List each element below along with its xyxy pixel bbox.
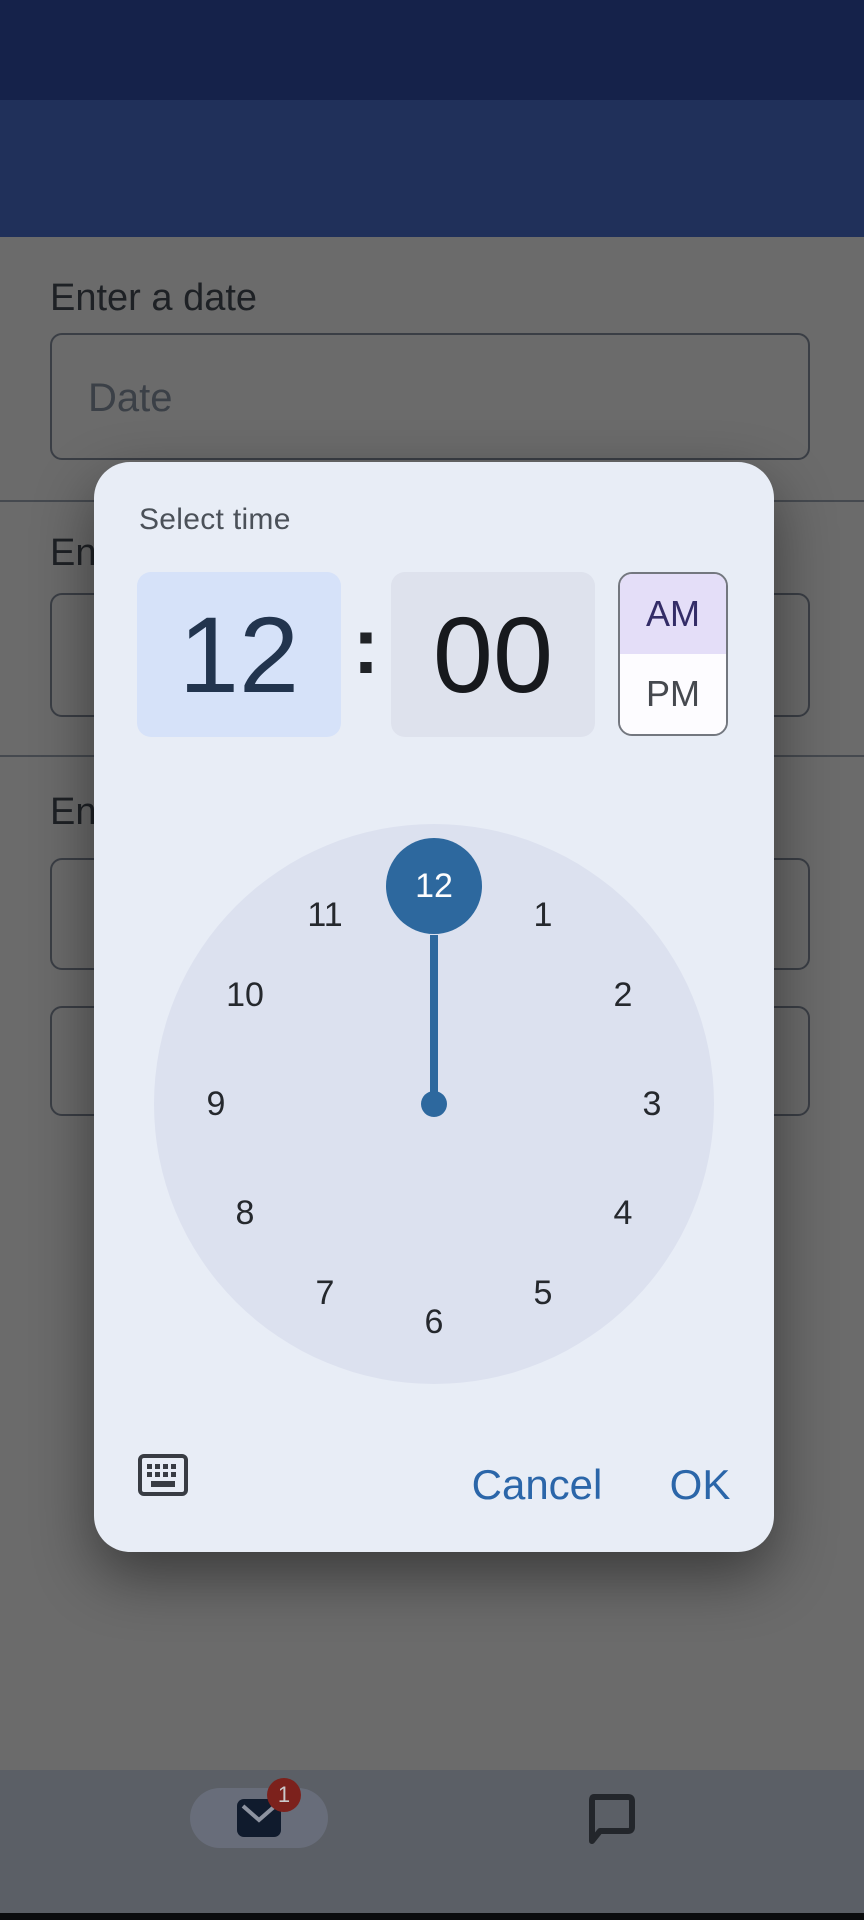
clock-dial[interactable]: 12 1 2 3 4 5 6 7 8 9 10 11 12 bbox=[154, 824, 714, 1384]
clock-number[interactable]: 2 bbox=[593, 965, 653, 1025]
gesture-bar bbox=[0, 1913, 864, 1920]
clock-hand bbox=[430, 935, 438, 1104]
ok-button[interactable]: OK bbox=[654, 1460, 746, 1510]
time-separator: : bbox=[341, 567, 391, 732]
section-label-partial: En bbox=[50, 791, 96, 834]
mail-badge: 1 bbox=[267, 1778, 301, 1812]
app-bar: Contacts bbox=[0, 100, 864, 237]
am-option[interactable]: AM bbox=[620, 574, 726, 656]
clock-number[interactable]: 8 bbox=[215, 1183, 275, 1243]
clock-number[interactable]: 1 bbox=[513, 885, 573, 945]
bottom-nav: 1 bbox=[0, 1770, 864, 1920]
date-input: Date bbox=[50, 333, 810, 460]
clock-number[interactable]: 7 bbox=[295, 1263, 355, 1323]
keyboard-icon bbox=[138, 1454, 188, 1498]
date-placeholder: Date bbox=[88, 376, 173, 421]
keyboard-input-toggle[interactable] bbox=[138, 1454, 192, 1504]
dialog-title: Select time bbox=[139, 503, 291, 537]
clock-number[interactable]: 11 bbox=[295, 885, 355, 945]
clock-number[interactable]: 5 bbox=[513, 1263, 573, 1323]
clock-number[interactable]: 6 bbox=[404, 1292, 464, 1352]
date-section-label: Enter a date bbox=[50, 277, 257, 320]
clock-number[interactable]: 3 bbox=[622, 1074, 682, 1134]
am-pm-toggle: AM PM bbox=[618, 572, 728, 736]
status-bar bbox=[0, 0, 864, 100]
clock-number[interactable]: 4 bbox=[593, 1183, 653, 1243]
minute-value: 00 bbox=[433, 592, 553, 717]
time-picker-dialog: Select time 12 : 00 AM PM 12 1 2 3 4 5 6… bbox=[94, 462, 774, 1552]
pm-option[interactable]: PM bbox=[620, 654, 726, 734]
cancel-button[interactable]: Cancel bbox=[444, 1460, 630, 1510]
minute-field[interactable]: 00 bbox=[391, 572, 595, 737]
clock-center-dot bbox=[421, 1091, 447, 1117]
hour-field[interactable]: 12 bbox=[137, 572, 341, 737]
hour-value: 12 bbox=[179, 592, 299, 717]
clock-number[interactable]: 9 bbox=[186, 1074, 246, 1134]
mail-nav-item: 1 bbox=[190, 1788, 328, 1848]
screen: Contacts Enter a date Date En En bbox=[0, 0, 864, 1920]
clock-number[interactable]: 10 bbox=[215, 965, 275, 1025]
section-label-partial: En bbox=[50, 532, 96, 575]
selected-hour-handle[interactable]: 12 bbox=[386, 838, 482, 934]
chat-icon bbox=[586, 1793, 636, 1845]
